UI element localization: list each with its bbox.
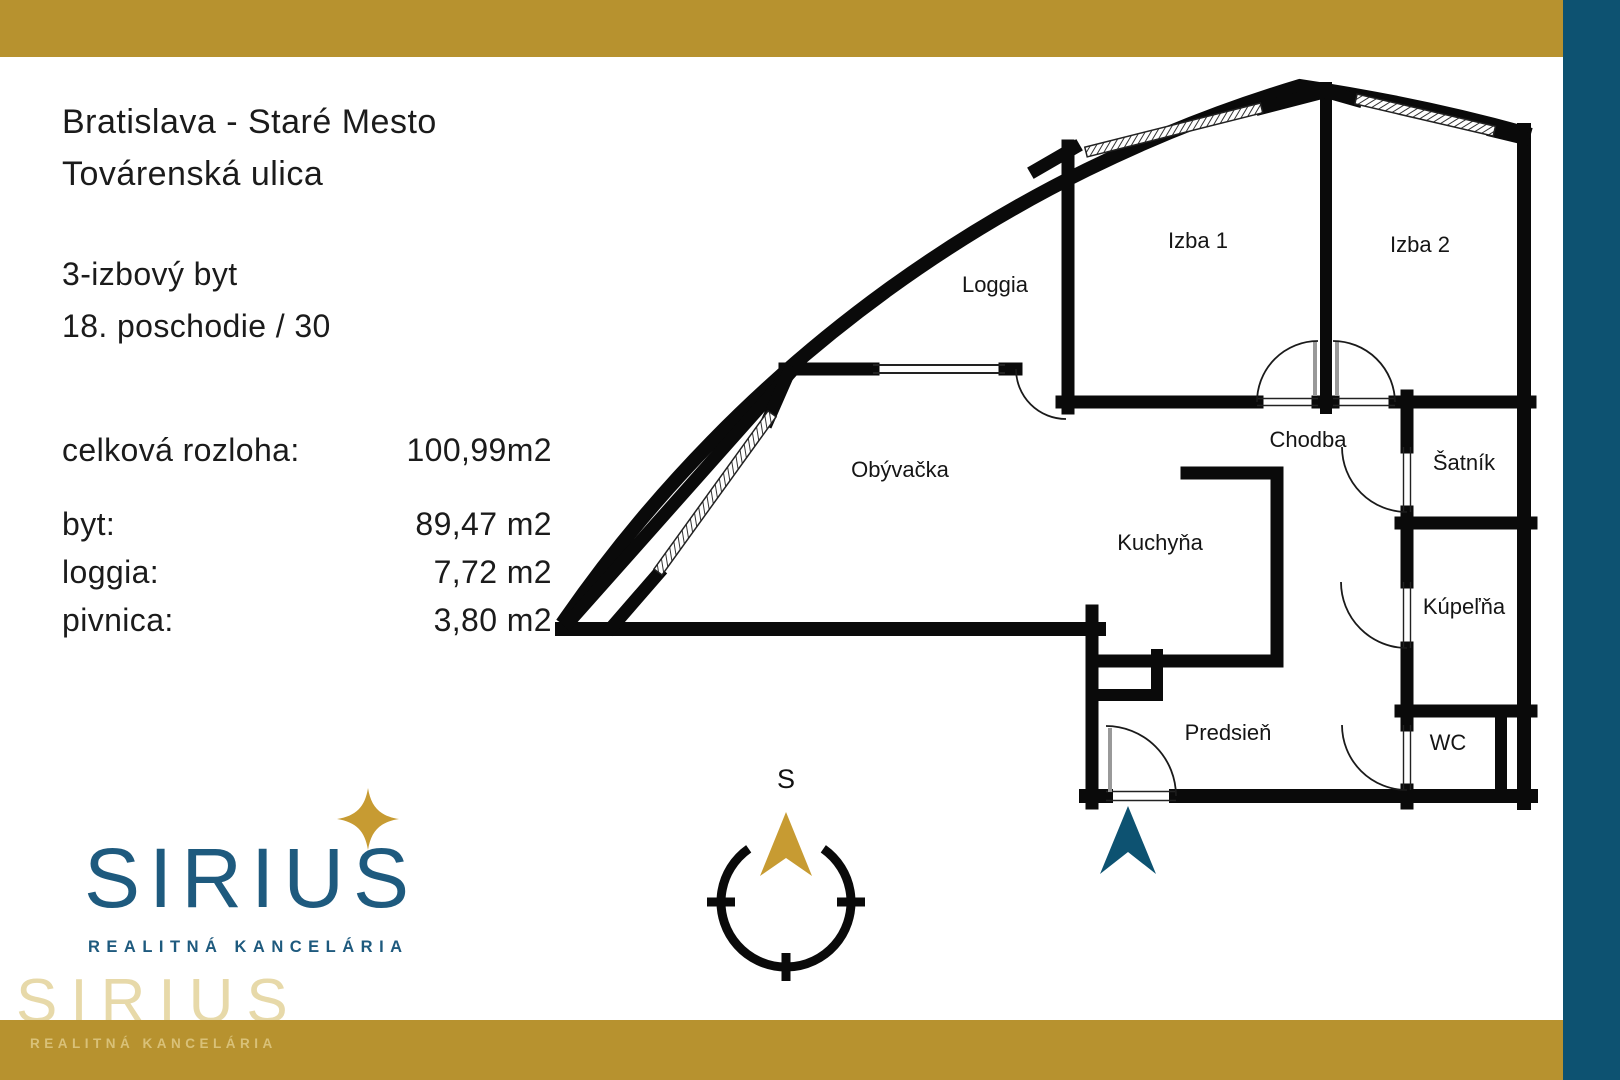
- room-label-satnik: Šatník: [1433, 450, 1496, 475]
- entrance-door-arc: [1106, 726, 1176, 796]
- plan-walls: [562, 86, 1531, 803]
- agency-logo-tagline: REALITNÁ KANCELÁRIA: [88, 938, 444, 957]
- room-label-kupelna: Kúpeľňa: [1423, 594, 1506, 619]
- agency-logo: SIRIUS REALITNÁ KANCELÁRIA: [84, 836, 444, 976]
- room-label-kuchyna: Kuchyňa: [1117, 530, 1203, 555]
- izba2-door-arc: [1333, 341, 1395, 402]
- loggia-door-arc: [1016, 369, 1066, 419]
- room-label-obyvacka: Obývačka: [851, 457, 950, 482]
- loggia-window: [873, 365, 1005, 373]
- izba1-window-band: [1085, 103, 1263, 157]
- compass: S: [707, 764, 865, 981]
- izba1-door-arc: [1257, 341, 1318, 402]
- room-label-izba2: Izba 2: [1390, 232, 1450, 257]
- room-label-predsien: Predsieň: [1185, 720, 1272, 745]
- inner-diagonal-wall: [569, 372, 791, 622]
- wc-door-arc: [1342, 725, 1407, 790]
- entrance-arrow-icon: [1100, 806, 1156, 874]
- kupelna-door-arc: [1341, 582, 1407, 648]
- compass-circle: [721, 849, 851, 967]
- room-label-loggia: Loggia: [962, 272, 1029, 297]
- agency-logo-name: SIRIUS: [84, 836, 444, 920]
- kitchen-wall: [1093, 473, 1277, 661]
- room-label-izba1: Izba 1: [1168, 228, 1228, 253]
- compass-needle-icon: [760, 812, 812, 876]
- flyer-canvas: SIRIUS REALITNÁ KANCELÁRIA Bratislava - …: [0, 0, 1620, 1080]
- plan-windows: [654, 94, 1495, 575]
- room-label-wc: WC: [1430, 730, 1467, 755]
- compass-north-label: S: [777, 764, 795, 794]
- room-label-chodba: Chodba: [1269, 427, 1347, 452]
- door-thresholds-vertical: [1404, 447, 1411, 790]
- satnik-door-arc: [1342, 447, 1407, 512]
